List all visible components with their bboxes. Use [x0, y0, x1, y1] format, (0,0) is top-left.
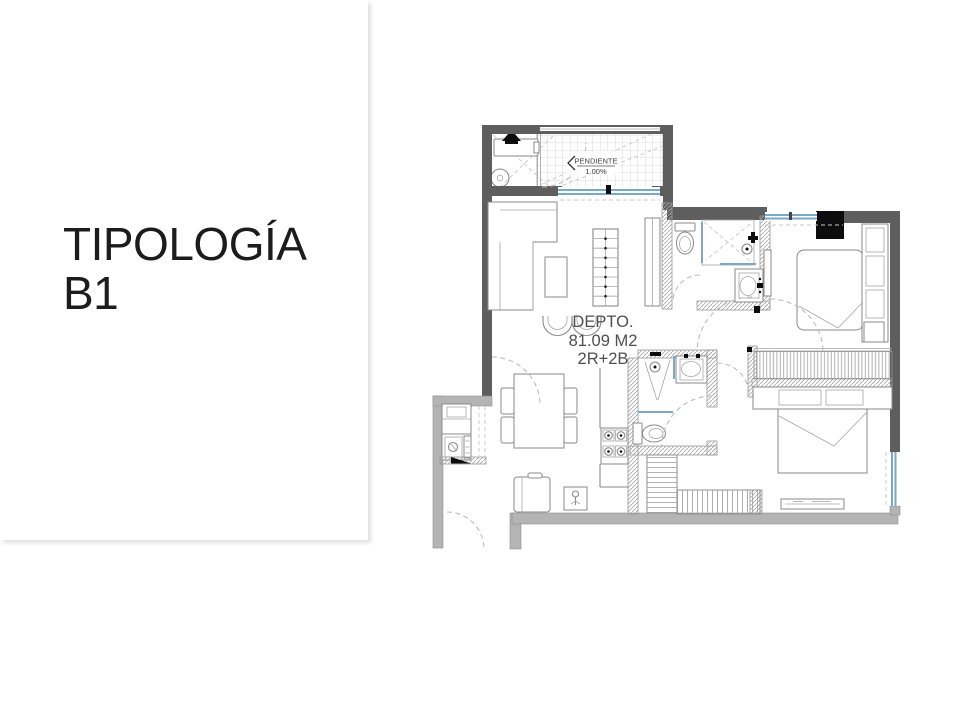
chair [564, 388, 577, 414]
slope-label: PENDIENTE [575, 157, 618, 166]
faucet-icon [757, 283, 763, 288]
slope-value: 1.00% [585, 167, 607, 176]
kitchen-bar [593, 229, 618, 306]
bedroom2-window [886, 452, 899, 508]
dining-area [501, 374, 577, 448]
window-handle [789, 212, 792, 220]
dresser [781, 499, 844, 509]
wall-bath1-top [667, 207, 767, 220]
bedroom2-door-swing [717, 363, 749, 395]
shower2 [638, 352, 674, 412]
floor-plan: PENDIENTE 1.00% DEPTO. 81.09 M2 2R+2B [0, 0, 960, 720]
bed-1 [797, 250, 863, 330]
window-handle [606, 185, 611, 194]
bed-2 [778, 409, 867, 473]
bath2-door-swing [662, 396, 712, 446]
living-window [558, 185, 660, 200]
bathroom-2 [633, 352, 707, 444]
utility-sink [564, 487, 587, 510]
faucet-icon [684, 354, 688, 358]
nightstand [864, 322, 884, 342]
shower-head-icon [650, 352, 661, 356]
chair [501, 417, 514, 443]
closet-shelves-vertical [647, 455, 677, 513]
wall-bottom [512, 513, 898, 524]
headboard-2 [753, 387, 892, 409]
door-leaf [764, 250, 771, 296]
bedroom-1 [754, 224, 892, 379]
bath2-sink [676, 354, 707, 383]
chair [564, 417, 577, 443]
entry-door-swing [447, 512, 484, 549]
bathroom-1 [675, 220, 771, 302]
kitchen-sink [442, 434, 471, 460]
shower [702, 220, 758, 265]
unit-area-label: 81.09 M2 [569, 332, 638, 350]
chair [501, 388, 514, 414]
bath1-door-swing [673, 275, 700, 302]
toilet2 [633, 423, 666, 444]
unit-config-label: 2R+2B [578, 350, 629, 368]
closet-shelves-horizontal [677, 490, 760, 514]
dining-table [514, 374, 564, 448]
stove [601, 428, 628, 464]
coffee-table [545, 257, 567, 297]
wall-living-top [482, 186, 562, 196]
unit-name-label: DEPTO. [572, 313, 633, 331]
door-stop [754, 306, 760, 313]
master-closet [754, 349, 892, 379]
toilet [675, 223, 695, 254]
water-heater [491, 169, 509, 187]
slide: TIPOLOGÍA B1 [0, 0, 960, 720]
refrigerator [514, 473, 550, 512]
wall-right [890, 211, 900, 452]
door-stop [747, 347, 752, 352]
wall-patio-right [663, 125, 673, 210]
